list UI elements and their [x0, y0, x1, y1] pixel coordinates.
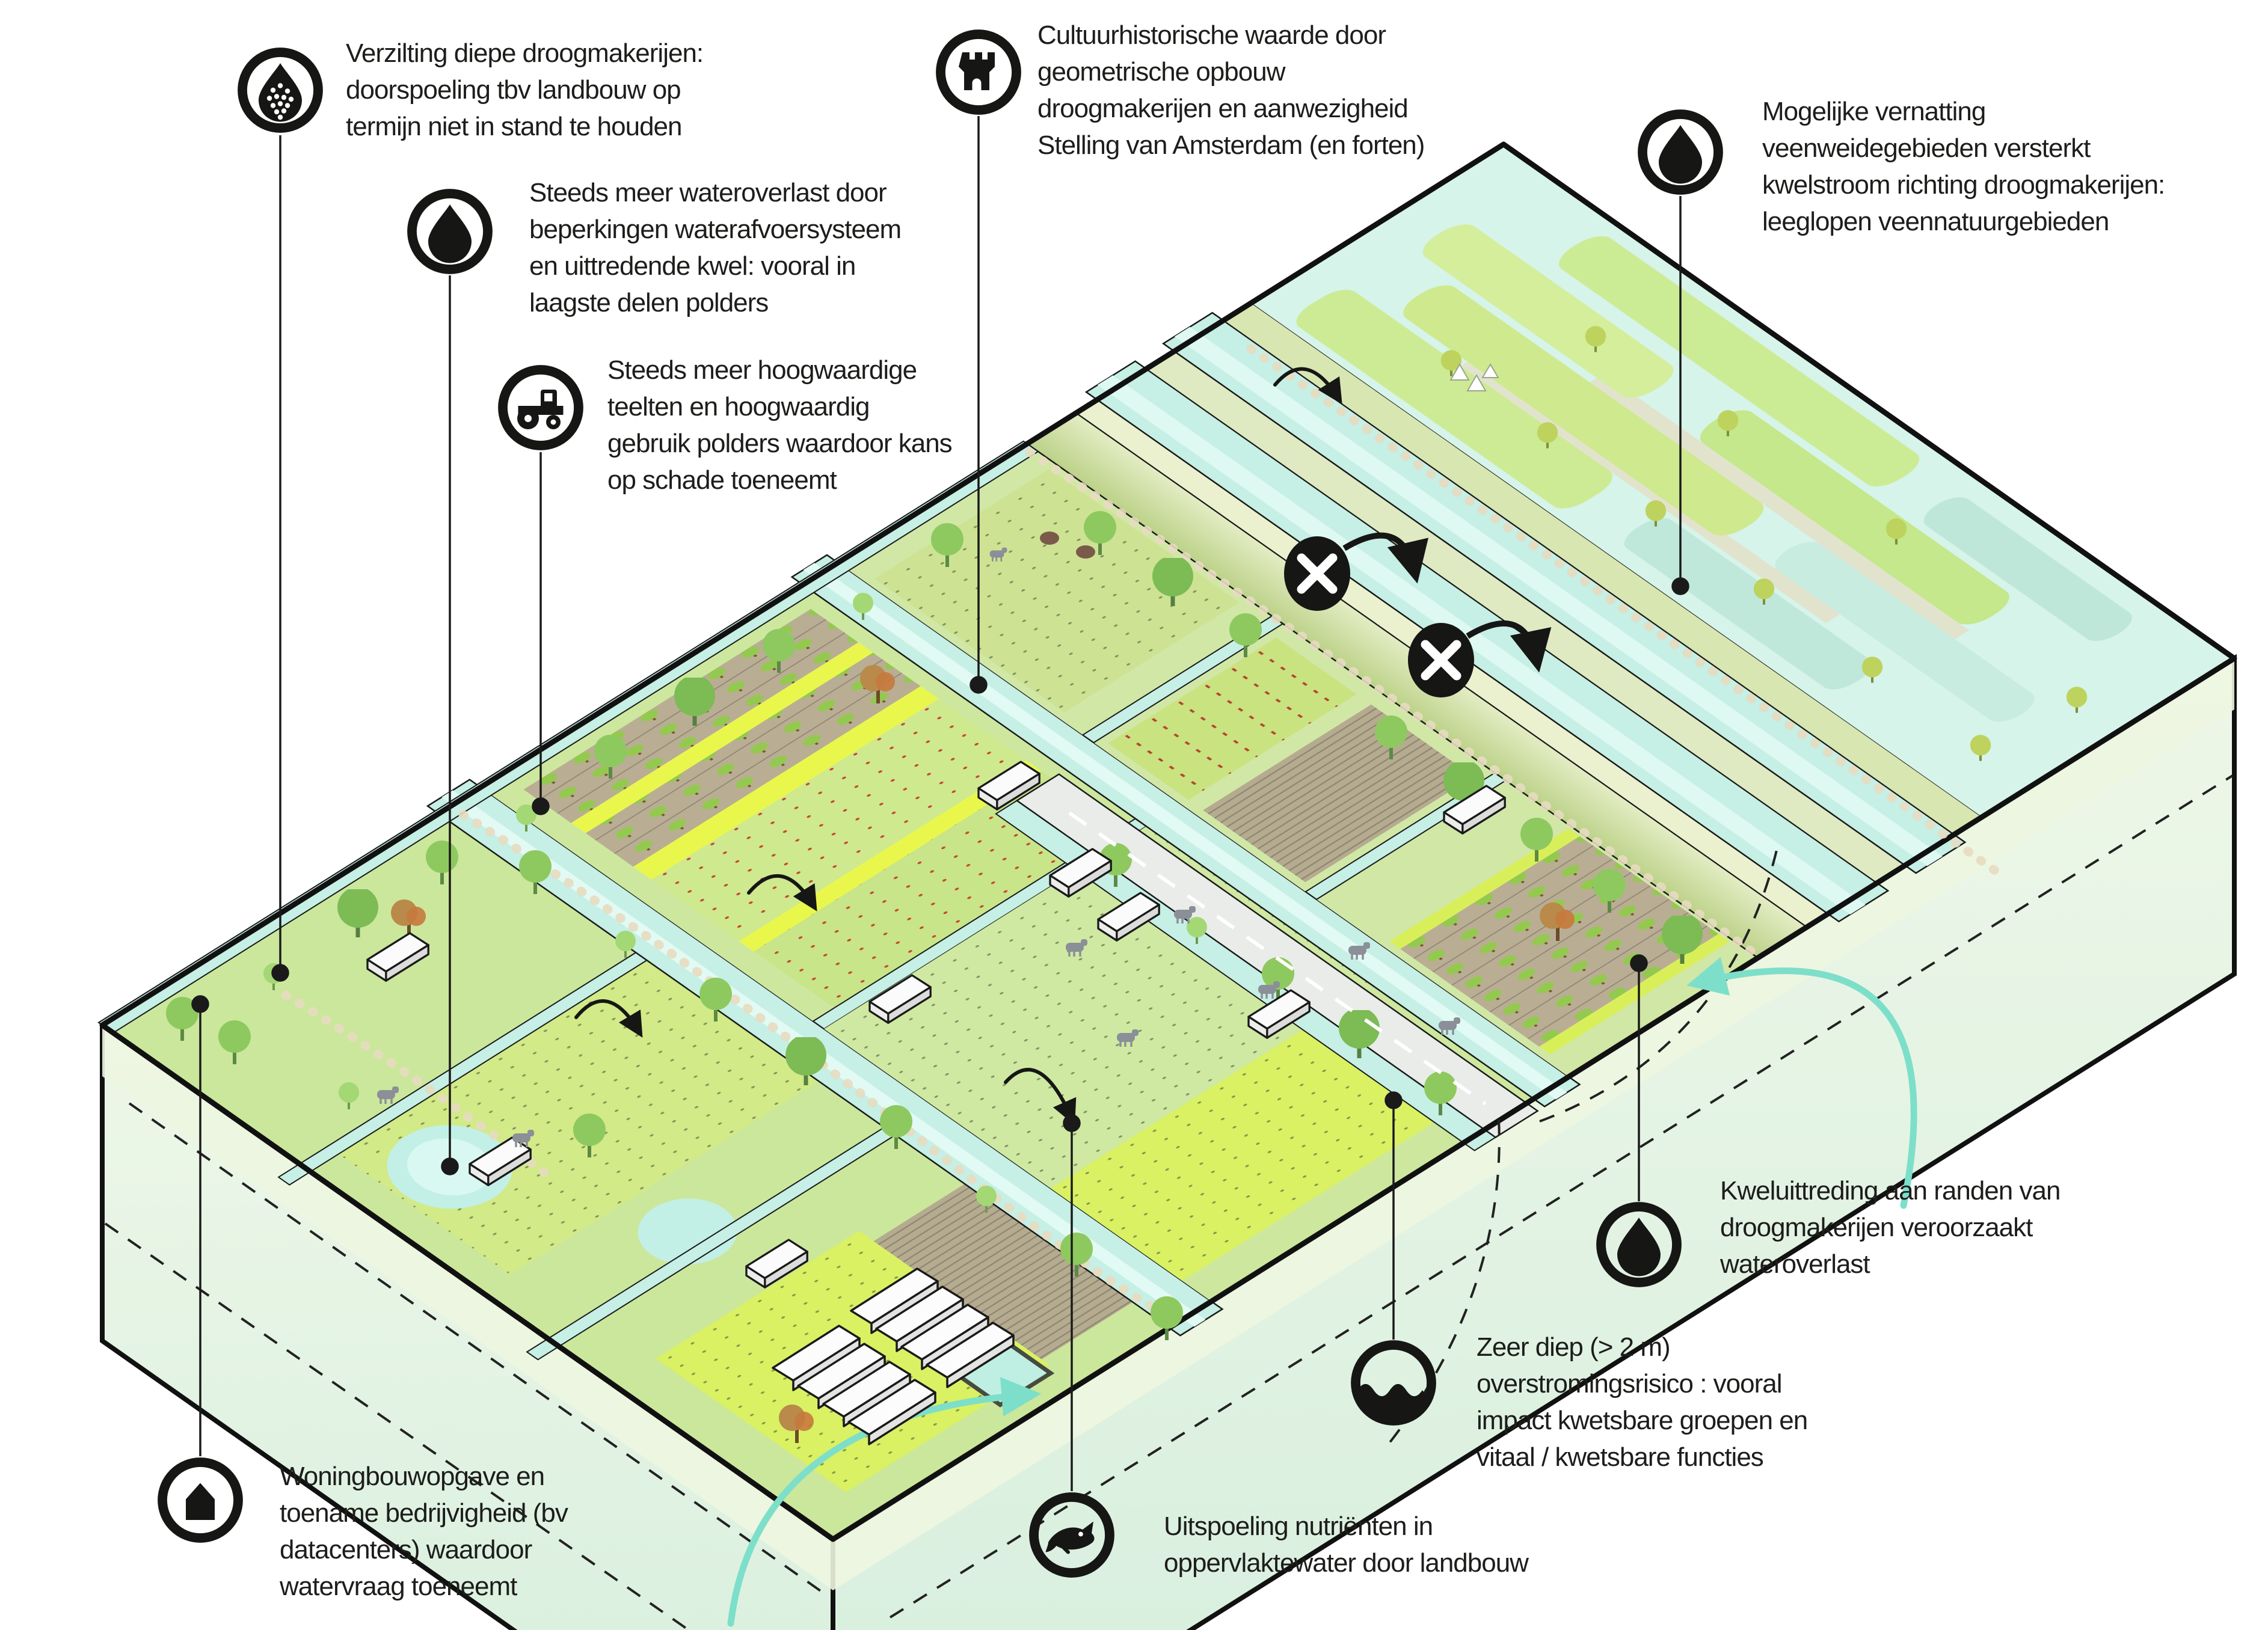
annotation-line: en uittredende kwel: vooral in: [529, 248, 901, 284]
annotation-text: Woningbouwopgave en toename bedrijvighei…: [280, 1458, 568, 1605]
fish-icon: [1027, 1490, 1117, 1580]
annotation-line: toename bedrijvigheid (bv: [280, 1495, 568, 1531]
annotation-line: Zeer diep (> 2 m): [1477, 1329, 1807, 1365]
annotation-text: Kweluittreding aan randen van droogmaker…: [1720, 1172, 2060, 1282]
annotation-line: leeglopen veennatuurgebieden: [1762, 203, 2165, 240]
annotation-line: Stelling van Amsterdam (en forten): [1037, 127, 1424, 164]
infographic-page: Verzilting diepe droogmakerijen: doorspo…: [0, 0, 2268, 1630]
annotation-line: termijn niet in stand te houden: [346, 108, 703, 145]
annotation-line: Cultuurhistorische waarde door: [1037, 17, 1424, 54]
annotation-text: Steeds meer hoogwaardige teelten en hoog…: [607, 352, 952, 498]
annotation-line: wateroverlast: [1720, 1246, 2060, 1282]
annotation-line: impact kwetsbare groepen en: [1477, 1402, 1807, 1439]
annotation-line: gebruik polders waardoor kans: [607, 425, 952, 462]
annotation-line: Uitspoeling nutriënten in: [1164, 1508, 1528, 1545]
annotation-line: Steeds meer wateroverlast door: [529, 174, 901, 211]
annotation-line: op schade toeneemt: [607, 462, 952, 498]
annotation-line: doorspoeling tbv landbouw op: [346, 72, 703, 108]
water-drop-icon: [1594, 1200, 1684, 1290]
annotation-line: Kweluittreding aan randen van: [1720, 1172, 2060, 1209]
annotation-line: droogmakerijen veroorzaakt: [1720, 1209, 2060, 1246]
flood-depth-icon: [1348, 1338, 1439, 1428]
fort-icon: [933, 27, 1024, 117]
annotation-line: Verzilting diepe droogmakerijen:: [346, 35, 703, 72]
annotation-line: geometrische opbouw: [1037, 54, 1424, 90]
annotation-line: droogmakerijen en aanwezigheid: [1037, 90, 1424, 127]
salt-drop-icon: [235, 45, 325, 135]
annotation-line: Mogelijke vernatting: [1762, 93, 2165, 130]
house-icon: [155, 1455, 245, 1545]
annotation-line: kwelstroom richting droogmakerijen:: [1762, 167, 2165, 203]
annotation-line: Woningbouwopgave en: [280, 1458, 568, 1495]
annotation-line: beperkingen waterafvoersysteem: [529, 211, 901, 248]
annotation-line: laagste delen polders: [529, 284, 901, 321]
water-drop-icon: [405, 186, 495, 277]
annotation-line: teelten en hoogwaardig: [607, 388, 952, 425]
annotation-text: Cultuurhistorische waarde door geometris…: [1037, 17, 1424, 164]
tractor-icon: [496, 363, 586, 453]
polder-isometric-illustration: [0, 0, 2268, 1630]
annotation-line: overstromingsrisico : vooral: [1477, 1365, 1807, 1402]
water-drop-icon: [1635, 107, 1726, 197]
annotation-text: Zeer diep (> 2 m) overstromingsrisico : …: [1477, 1329, 1807, 1475]
annotation-text: Steeds meer wateroverlast door beperking…: [529, 174, 901, 321]
annotation-line: veenweidegebieden versterkt: [1762, 130, 2165, 167]
annotation-text: Verzilting diepe droogmakerijen: doorspo…: [346, 35, 703, 145]
annotation-line: watervraag toeneemt: [280, 1568, 568, 1605]
annotation-text: Uitspoeling nutriënten in oppervlaktewat…: [1164, 1508, 1528, 1581]
annotation-line: datacenters) waardoor: [280, 1531, 568, 1568]
annotation-text: Mogelijke vernatting veenweidegebieden v…: [1762, 93, 2165, 240]
annotation-line: oppervlaktewater door landbouw: [1164, 1545, 1528, 1581]
annotation-line: vitaal / kwetsbare functies: [1477, 1439, 1807, 1475]
annotation-line: Steeds meer hoogwaardige: [607, 352, 952, 388]
